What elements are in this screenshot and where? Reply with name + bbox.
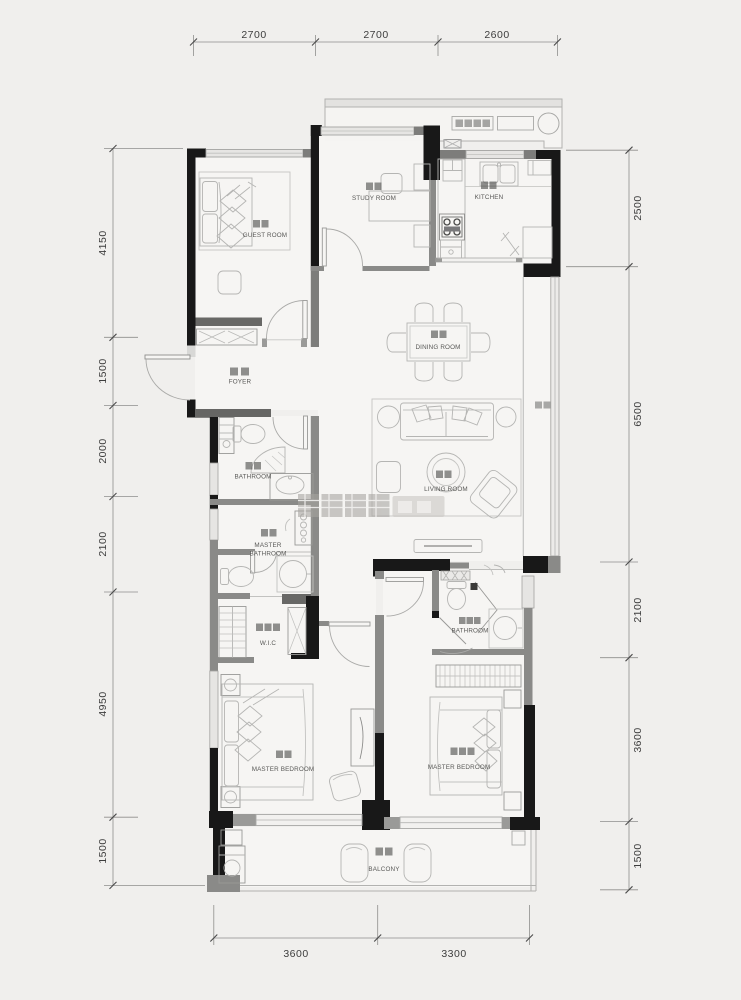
svg-text:BALCONY: BALCONY bbox=[368, 866, 400, 873]
svg-text:STUDY ROOM: STUDY ROOM bbox=[352, 195, 396, 202]
svg-text:4950: 4950 bbox=[97, 691, 109, 716]
svg-text:LIVING ROOM: LIVING ROOM bbox=[424, 486, 468, 493]
svg-text:3600: 3600 bbox=[632, 727, 644, 752]
svg-text:MASTER BEDROOM: MASTER BEDROOM bbox=[428, 764, 491, 771]
svg-text:FOYER: FOYER bbox=[229, 379, 252, 386]
svg-text:1500: 1500 bbox=[97, 358, 109, 383]
svg-text:3600: 3600 bbox=[283, 948, 308, 960]
svg-text:1500: 1500 bbox=[97, 838, 109, 863]
svg-text:GUEST ROOM: GUEST ROOM bbox=[243, 232, 287, 239]
svg-text:2000: 2000 bbox=[97, 438, 109, 463]
svg-text:2500: 2500 bbox=[632, 195, 644, 220]
svg-text:BATHROOM: BATHROOM bbox=[234, 474, 271, 481]
svg-text:KITCHEN: KITCHEN bbox=[475, 194, 504, 201]
svg-text:MASTER BEDROOM: MASTER BEDROOM bbox=[252, 766, 315, 773]
svg-text:4150: 4150 bbox=[97, 230, 109, 255]
svg-text:2100: 2100 bbox=[632, 597, 644, 622]
svg-text:2700: 2700 bbox=[241, 29, 266, 41]
svg-text:2100: 2100 bbox=[97, 531, 109, 556]
svg-text:BATHROOM: BATHROOM bbox=[451, 628, 488, 635]
svg-text:DINING ROOM: DINING ROOM bbox=[415, 344, 460, 351]
svg-text:1500: 1500 bbox=[632, 843, 644, 868]
svg-text:2700: 2700 bbox=[363, 29, 388, 41]
svg-text:6500: 6500 bbox=[632, 401, 644, 426]
svg-text:3300: 3300 bbox=[441, 948, 466, 960]
svg-text:MASTER: MASTER bbox=[254, 542, 281, 549]
svg-text:2600: 2600 bbox=[484, 29, 509, 41]
svg-text:W.I.C: W.I.C bbox=[260, 640, 276, 647]
svg-text:BATHROOM: BATHROOM bbox=[249, 551, 286, 558]
